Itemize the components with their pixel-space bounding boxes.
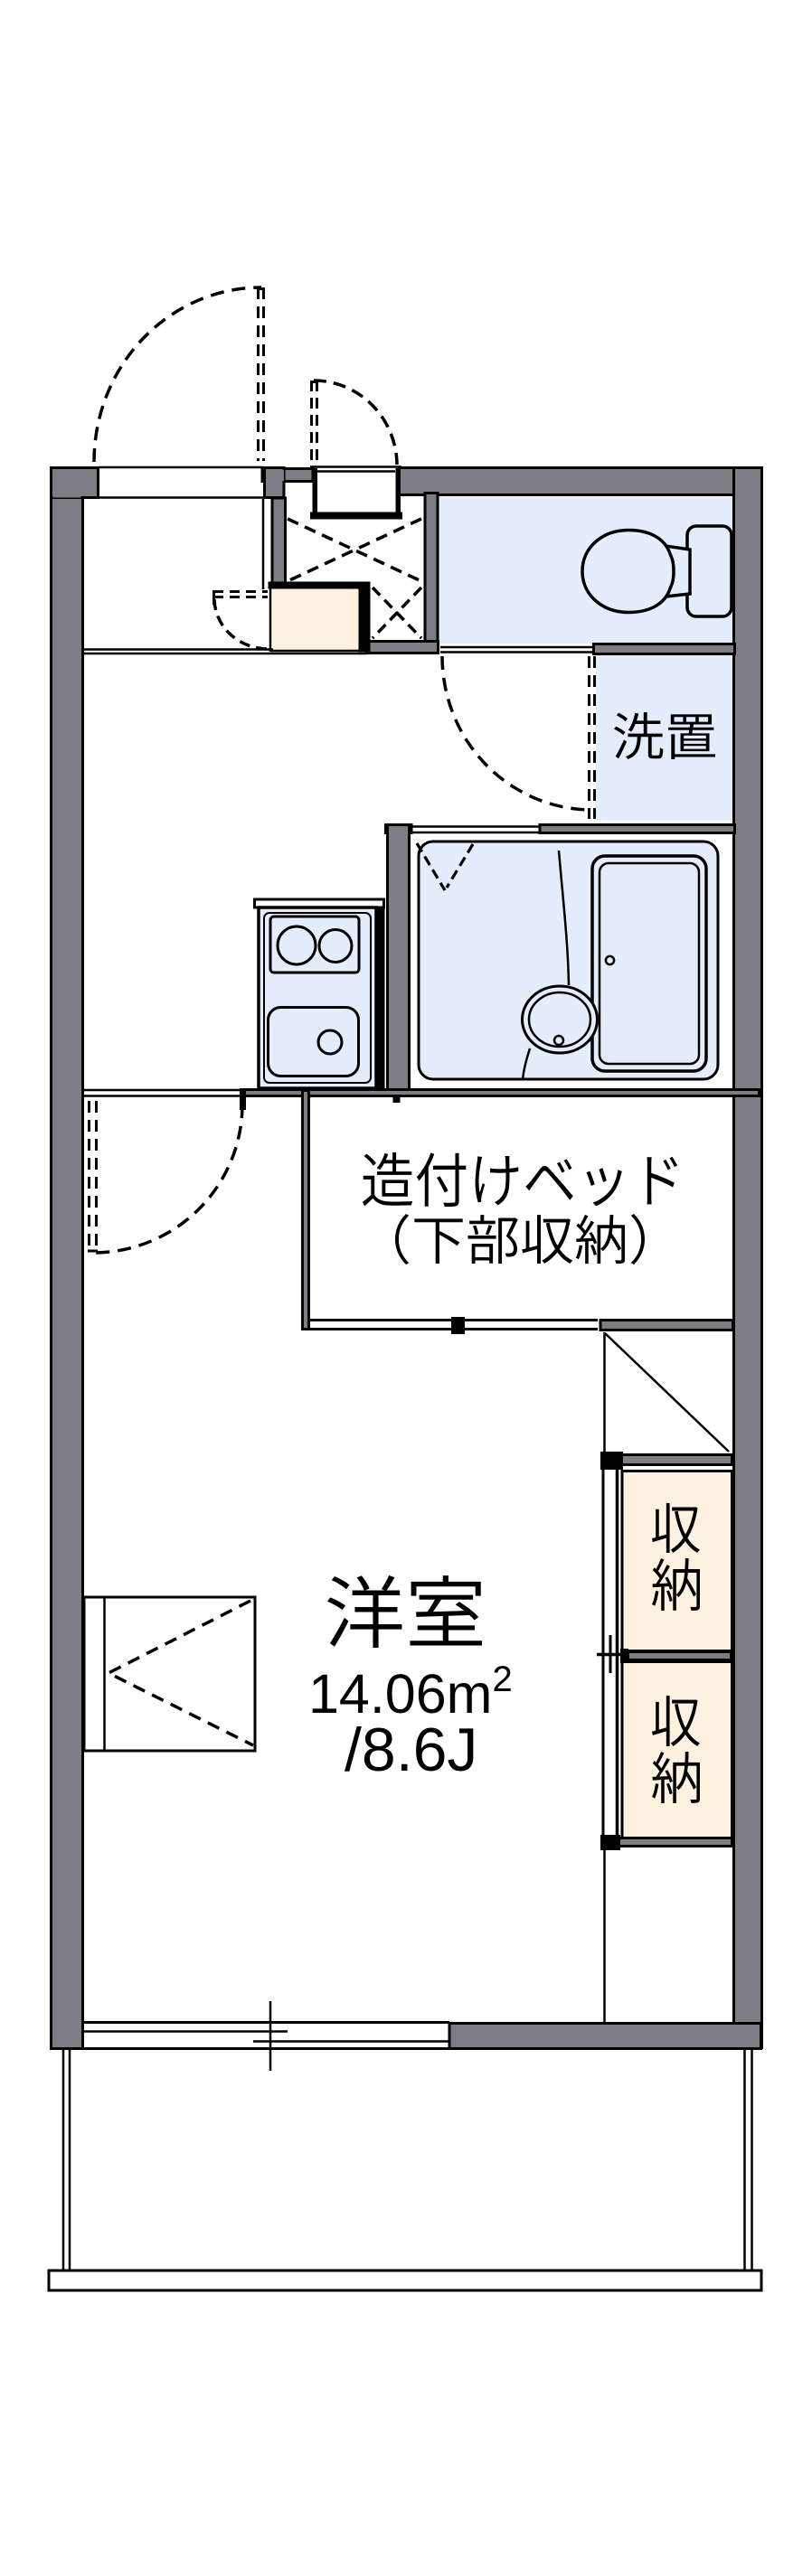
svg-text:/8.6J: /8.6J — [345, 1716, 477, 1784]
